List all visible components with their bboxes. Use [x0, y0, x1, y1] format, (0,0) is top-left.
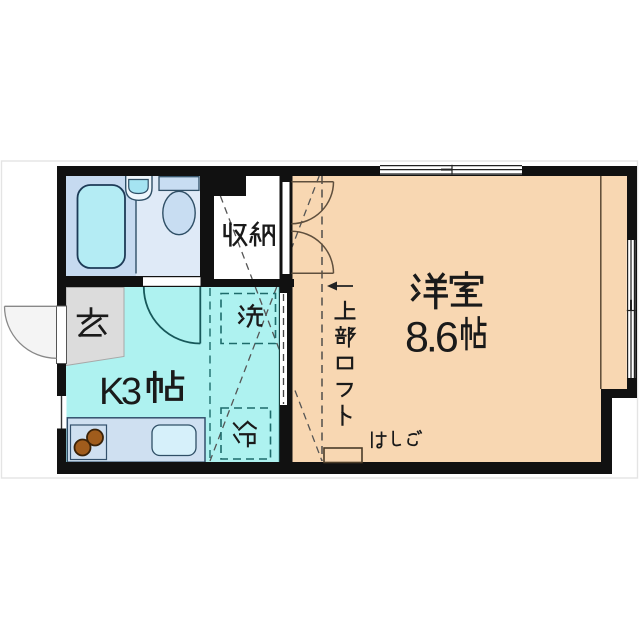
- svg-text:K3: K3: [99, 371, 141, 413]
- svg-text:8.6: 8.6: [405, 314, 458, 362]
